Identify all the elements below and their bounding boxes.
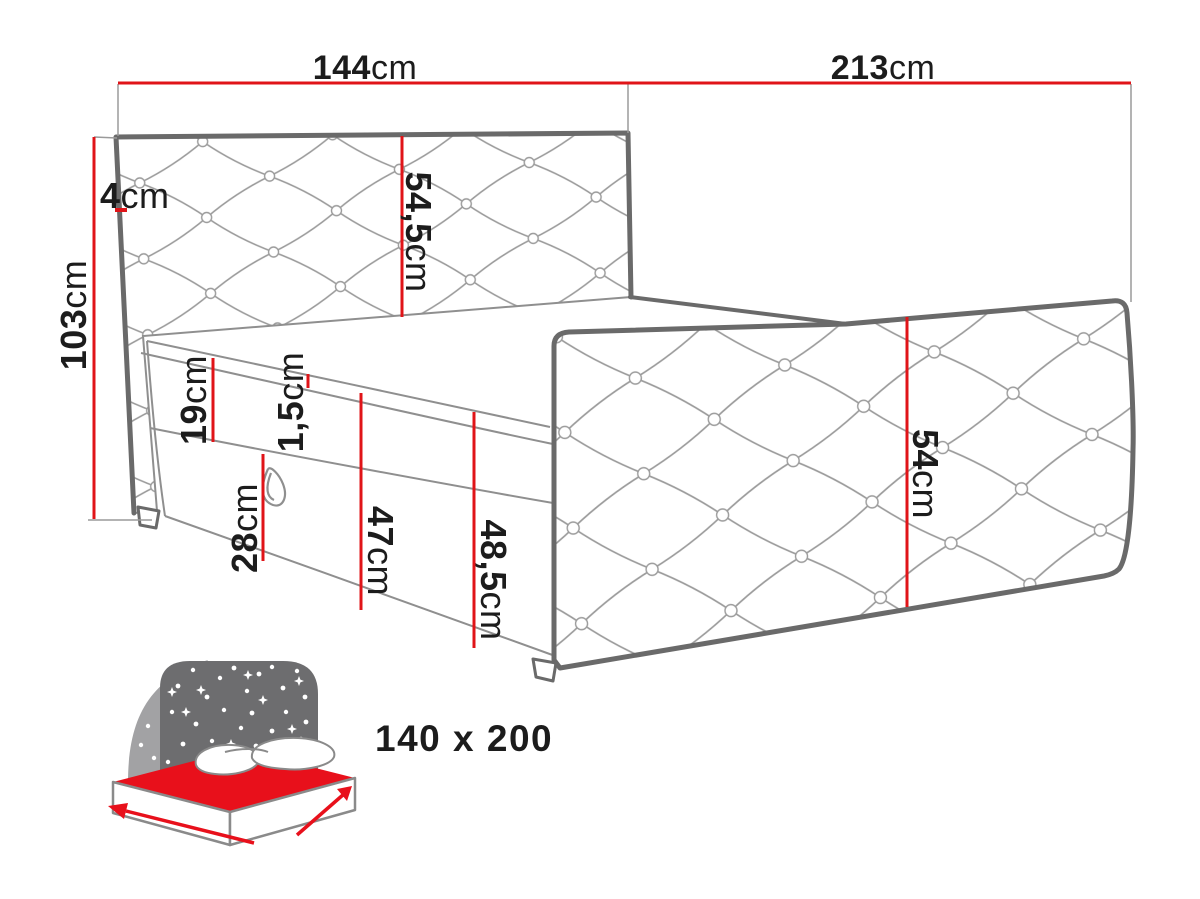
label-mattress: 19cm (173, 355, 214, 445)
far-rail-top-edge (630, 297, 846, 324)
label-width: 144cm (313, 49, 418, 87)
dim-value: 28 (224, 532, 265, 573)
side-panel (554, 297, 1133, 668)
dim-value: 48,5 (473, 519, 514, 591)
dim-value: 4 (100, 175, 121, 216)
bed-drawing (116, 133, 1133, 681)
dim-unit: cm (173, 355, 214, 404)
dim-unit: cm (53, 260, 94, 309)
label-total-height: 103cm (53, 260, 94, 371)
dim-unit: cm (371, 49, 417, 87)
headboard-left-leg (138, 507, 159, 528)
label-base: 28cm (224, 483, 265, 573)
dim-unit: cm (398, 244, 439, 293)
dim-unit: cm (473, 592, 514, 641)
label-side-back: 48,5cm (473, 519, 514, 640)
label-headboard-panel: 54,5cm (398, 171, 439, 292)
dim-value: 54 (905, 429, 946, 470)
storage-handle (263, 468, 285, 505)
dim-value: 213 (831, 49, 889, 87)
dim-unit: cm (360, 547, 401, 596)
front-right-leg (533, 659, 556, 681)
dim-value: 144 (313, 49, 371, 87)
label-side-panel: 54cm (905, 429, 946, 519)
bed-size-icon: 140 x 200 (108, 660, 553, 845)
label-topper: 1,5cm (270, 352, 311, 453)
bed-dimension-diagram: 144cm 213cm 103cm 4cm 54,5cm 19cm 1,5cm … (0, 0, 1200, 899)
dim-value: 1,5 (270, 401, 311, 453)
dim-unit: cm (121, 175, 170, 216)
dim-unit: cm (905, 470, 946, 519)
dim-value: 47 (360, 506, 401, 547)
label-headboard-edge: 4cm (100, 175, 170, 216)
dim-unit: cm (270, 352, 311, 401)
dim-unit: cm (889, 49, 935, 87)
dim-unit: cm (224, 483, 265, 532)
label-side-front: 47cm (360, 506, 401, 596)
size-label: 140 x 200 (375, 718, 553, 759)
diagram-canvas: 144cm 213cm 103cm 4cm 54,5cm 19cm 1,5cm … (0, 0, 1200, 899)
dim-value: 103 (53, 309, 94, 371)
label-length: 213cm (831, 49, 936, 87)
dim-value: 54,5 (398, 171, 439, 243)
dim-value: 19 (173, 404, 214, 445)
